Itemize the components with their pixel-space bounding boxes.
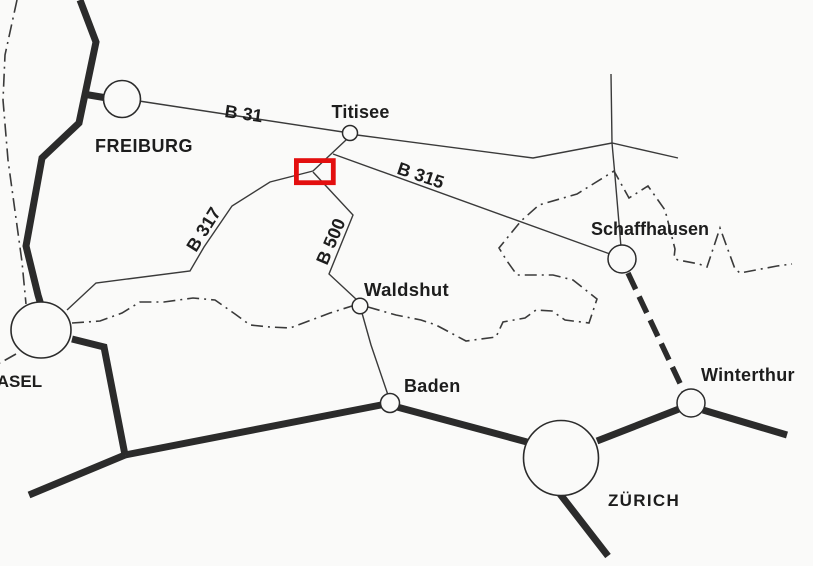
svg-text:Schaffhausen: Schaffhausen — [591, 219, 709, 239]
svg-text:Titisee: Titisee — [332, 102, 390, 122]
svg-text:Baden: Baden — [404, 376, 461, 396]
svg-text:BASEL: BASEL — [0, 372, 42, 391]
svg-text:FREIBURG: FREIBURG — [95, 136, 193, 156]
svg-text:Waldshut: Waldshut — [364, 279, 449, 300]
svg-text:ZÜRICH: ZÜRICH — [608, 491, 680, 510]
svg-text:Winterthur: Winterthur — [701, 365, 795, 385]
